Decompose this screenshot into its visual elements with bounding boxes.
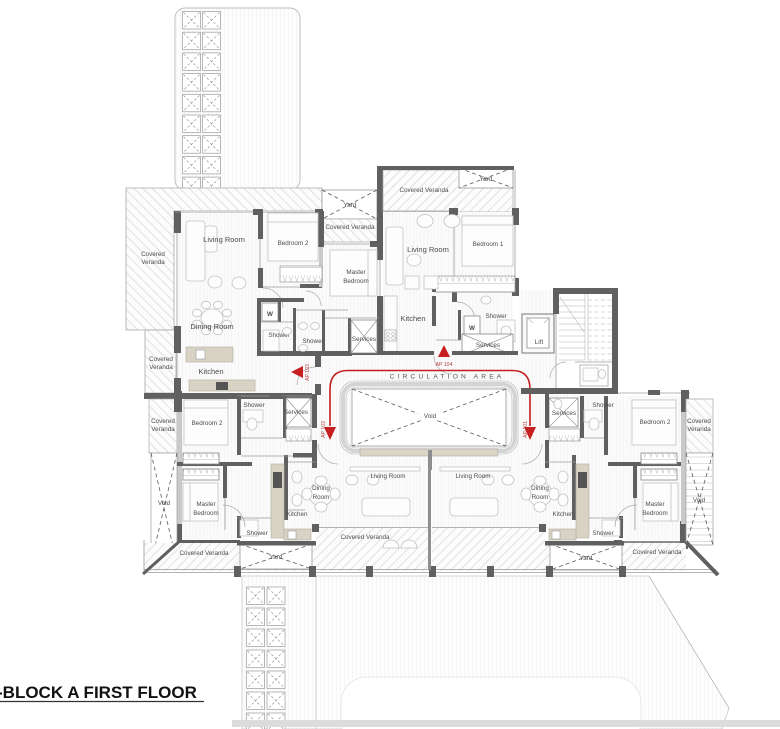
svg-text:Room: Room bbox=[313, 494, 330, 501]
svg-text:AP 102: AP 102 bbox=[321, 421, 327, 438]
svg-text:Covered: Covered bbox=[151, 418, 175, 425]
svg-text:Bedroom 2: Bedroom 2 bbox=[192, 420, 223, 427]
svg-text:Veranda: Veranda bbox=[687, 426, 711, 433]
svg-text:Veranda: Veranda bbox=[149, 364, 173, 371]
svg-text:Covered: Covered bbox=[687, 418, 711, 425]
svg-text:W: W bbox=[469, 325, 475, 332]
svg-text:Covered: Covered bbox=[149, 356, 173, 363]
svg-text:Living Room: Living Room bbox=[456, 473, 491, 480]
svg-text:Shower: Shower bbox=[485, 313, 506, 320]
svg-text:Covered Veranda: Covered Veranda bbox=[179, 550, 229, 557]
svg-text:Master: Master bbox=[645, 501, 664, 508]
svg-text:Living Room: Living Room bbox=[203, 235, 245, 244]
svg-text:Veranda: Veranda bbox=[151, 426, 175, 433]
svg-text:Covered Veranda: Covered Veranda bbox=[632, 549, 682, 556]
svg-text:Shower: Shower bbox=[592, 402, 613, 409]
svg-text:Veranda: Veranda bbox=[141, 259, 165, 266]
svg-text:Void: Void bbox=[424, 413, 437, 420]
svg-text:Void: Void bbox=[693, 497, 706, 504]
svg-text:Bedroom: Bedroom bbox=[193, 510, 219, 517]
svg-text:Yard: Yard bbox=[480, 176, 493, 183]
svg-text:Kitchen: Kitchen bbox=[198, 367, 223, 376]
svg-text:Lift: Lift bbox=[535, 339, 544, 346]
svg-text:Bedroom 2: Bedroom 2 bbox=[640, 419, 671, 426]
svg-text:Covered Veranda: Covered Veranda bbox=[399, 187, 449, 194]
svg-text:Shower: Shower bbox=[302, 338, 323, 345]
svg-text:Kitchen: Kitchen bbox=[286, 511, 308, 518]
svg-text:Services: Services bbox=[284, 409, 308, 416]
svg-text:Master: Master bbox=[196, 501, 215, 508]
svg-text:Covered Veranda: Covered Veranda bbox=[340, 534, 390, 541]
svg-text:Shower: Shower bbox=[243, 402, 264, 409]
svg-text:Yard: Yard bbox=[270, 554, 283, 561]
svg-text:Bedroom: Bedroom bbox=[343, 278, 369, 285]
svg-text:Services: Services bbox=[552, 410, 576, 417]
svg-text:Covered Veranda: Covered Veranda bbox=[325, 224, 375, 231]
svg-text:Bedroom 1: Bedroom 1 bbox=[473, 241, 504, 248]
svg-text:Room: Room bbox=[532, 494, 549, 501]
svg-text:Yard: Yard bbox=[344, 202, 357, 209]
svg-text:Services: Services bbox=[352, 336, 376, 343]
svg-text:Shower: Shower bbox=[246, 530, 267, 537]
svg-text:Services: Services bbox=[476, 342, 500, 349]
svg-text:Dining Room: Dining Room bbox=[190, 322, 233, 331]
svg-text:Living Room: Living Room bbox=[371, 473, 406, 480]
svg-text:Yard: Yard bbox=[580, 555, 593, 562]
svg-text:-BLOCK A FIRST FLOOR: -BLOCK A FIRST FLOOR bbox=[0, 683, 197, 702]
svg-text:AP 103: AP 103 bbox=[305, 364, 311, 381]
svg-text:Bedroom: Bedroom bbox=[642, 510, 668, 517]
svg-text:Kitchen: Kitchen bbox=[400, 314, 425, 323]
svg-text:AP 101: AP 101 bbox=[523, 421, 529, 438]
svg-text:Void: Void bbox=[158, 500, 171, 507]
svg-text:Dining: Dining bbox=[312, 485, 330, 492]
svg-text:Shower: Shower bbox=[592, 530, 613, 537]
svg-text:CIRCULATION AREA: CIRCULATION AREA bbox=[390, 374, 505, 381]
svg-text:W: W bbox=[267, 311, 273, 318]
svg-text:Covered: Covered bbox=[141, 251, 165, 258]
svg-text:AP 104: AP 104 bbox=[436, 362, 453, 368]
svg-text:Living Room: Living Room bbox=[407, 245, 449, 254]
svg-text:Dining: Dining bbox=[531, 485, 549, 492]
svg-text:Bedroom 2: Bedroom 2 bbox=[278, 240, 309, 247]
svg-text:Kitchen: Kitchen bbox=[552, 511, 574, 518]
svg-text:Master: Master bbox=[346, 269, 365, 276]
